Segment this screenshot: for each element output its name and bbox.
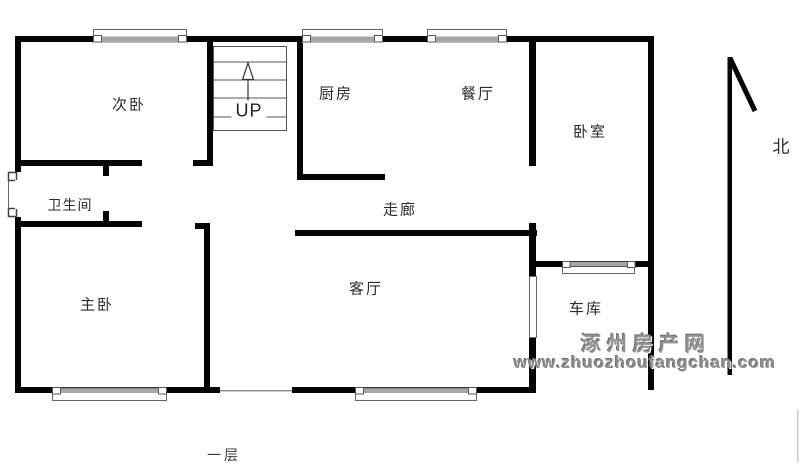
wall-garage-left-upper xyxy=(529,267,536,276)
wall-bedroom2-bottom xyxy=(15,160,142,166)
window-left-bathroom xyxy=(8,172,21,217)
wall-dining-bedroom-divider xyxy=(529,36,536,166)
room-label-living-room: 客厅 xyxy=(349,278,383,299)
room-label-secondary-bedroom: 次卧 xyxy=(112,94,146,115)
room-label-garage: 车库 xyxy=(569,298,603,319)
room-label-master-bedroom: 主卧 xyxy=(80,294,114,315)
window-top-bedroom2 xyxy=(93,30,187,44)
entry-opening-line xyxy=(220,390,292,392)
room-label-bathroom: 卫生间 xyxy=(48,195,93,215)
wall-right xyxy=(648,36,654,390)
floor-level-label: 一层 xyxy=(207,445,241,465)
window-garage-left xyxy=(529,276,537,338)
wall-stairs-left-foot xyxy=(193,160,207,166)
stairs-up-label: UP xyxy=(231,101,266,122)
wall-bathroom-bottom xyxy=(15,221,142,227)
edge-artifact-line xyxy=(797,410,799,462)
wall-master-divider-cap xyxy=(195,223,210,229)
room-label-dining-room: 餐厅 xyxy=(461,83,495,104)
window-top-kitchen xyxy=(302,30,383,44)
north-arrow-icon xyxy=(728,57,756,375)
wall-garage-left-lower xyxy=(529,338,536,393)
room-label-corridor: 走廊 xyxy=(383,199,417,220)
wall-kitchen-left xyxy=(297,42,303,180)
window-garage-top xyxy=(562,262,635,274)
wall-stairs-left xyxy=(207,42,213,166)
wall-corridor-bottom xyxy=(295,230,537,236)
window-bottom-master xyxy=(52,388,167,401)
room-label-bedroom: 卧室 xyxy=(573,121,607,142)
window-top-dining xyxy=(427,30,507,44)
north-label: 北 xyxy=(773,133,790,158)
wall-master-divider xyxy=(204,223,210,393)
room-label-kitchen: 厨房 xyxy=(319,83,353,104)
floor-plan-image: 次卧 UP 厨房 餐厅 卧室 卫生间 走廊 主卧 客厅 车库 北 一层 涿州房产… xyxy=(0,0,800,469)
door-jamb-bath-top xyxy=(103,166,109,176)
door-jamb-bath-bottom xyxy=(103,211,109,221)
window-bottom-living xyxy=(355,388,477,401)
wall-kitchen-bottom xyxy=(297,174,385,180)
floor-plan-drawing xyxy=(0,0,800,469)
